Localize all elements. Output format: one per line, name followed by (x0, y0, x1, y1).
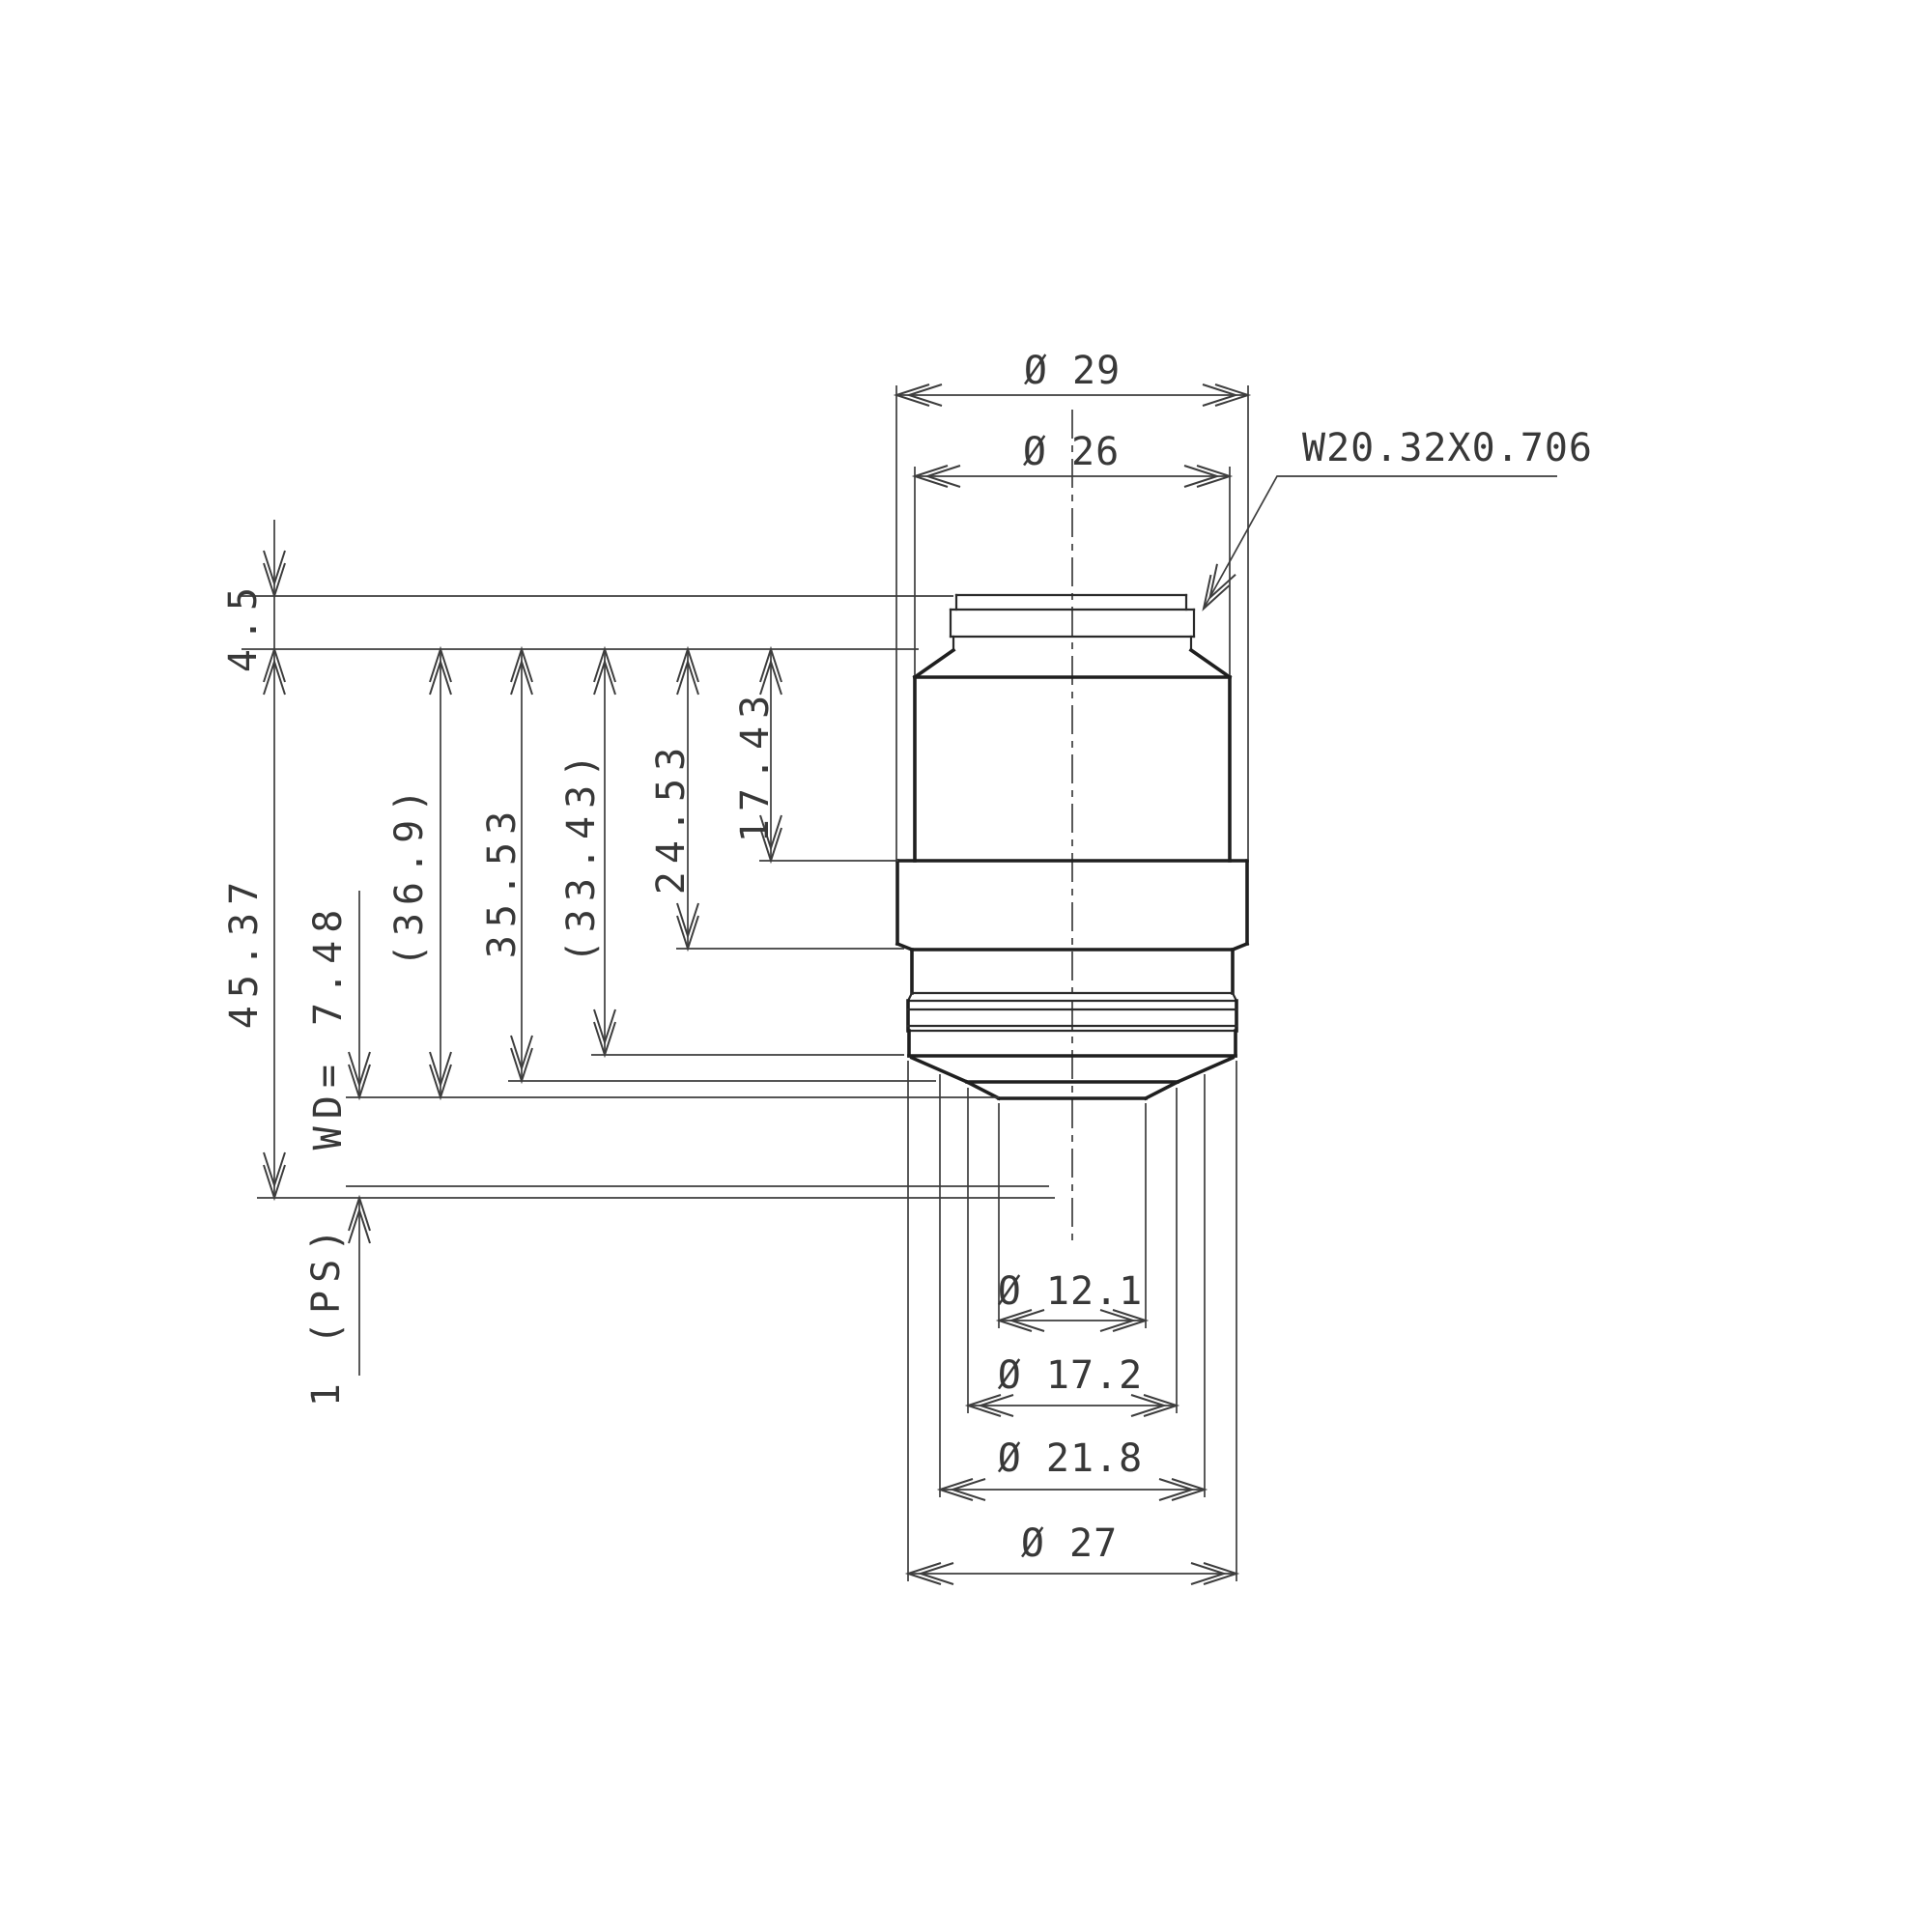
thread-leader-line (1204, 476, 1557, 609)
dim-label-diameter-17-2: Ø 17.2 (998, 1353, 1144, 1398)
dimension-arrowheads (264, 384, 1248, 1584)
dim-label-parfocal: 45.37 (222, 874, 267, 1029)
dim-label-diameter-26: Ø 26 (1023, 430, 1120, 474)
dim-label-33-43: (33.43) (559, 747, 604, 964)
dimension-labels: Ø 29 Ø 26 W20.32X0.706 4.5 45.37 WD= 7.4… (221, 349, 1593, 1566)
dim-label-35-53: 35.53 (480, 804, 525, 958)
dim-label-17-43: 17.43 (733, 688, 778, 842)
dim-label-working-distance: WD= 7.48 (306, 902, 351, 1151)
dim-label-diameter-12-1: Ø 12.1 (998, 1269, 1144, 1314)
dim-label-24-53: 24.53 (649, 740, 694, 895)
dim-label-diameter-29: Ø 29 (1024, 349, 1121, 393)
objective-dimension-drawing: Ø 29 Ø 26 W20.32X0.706 4.5 45.37 WD= 7.4… (0, 0, 1932, 1932)
dim-label-thread-length: 4.5 (221, 580, 266, 672)
dim-label-36-9: (36.9) (387, 781, 432, 968)
dim-label-plate-1ps: 1 (PS) (304, 1221, 349, 1407)
reference-lines (241, 596, 1055, 1198)
technical-drawing-page: Ø 29 Ø 26 W20.32X0.706 4.5 45.37 WD= 7.4… (0, 0, 1932, 1932)
dim-label-diameter-27: Ø 27 (1021, 1521, 1118, 1566)
dim-label-thread-spec: W20.32X0.706 (1302, 426, 1593, 470)
dim-label-diameter-21-8: Ø 21.8 (998, 1436, 1144, 1481)
